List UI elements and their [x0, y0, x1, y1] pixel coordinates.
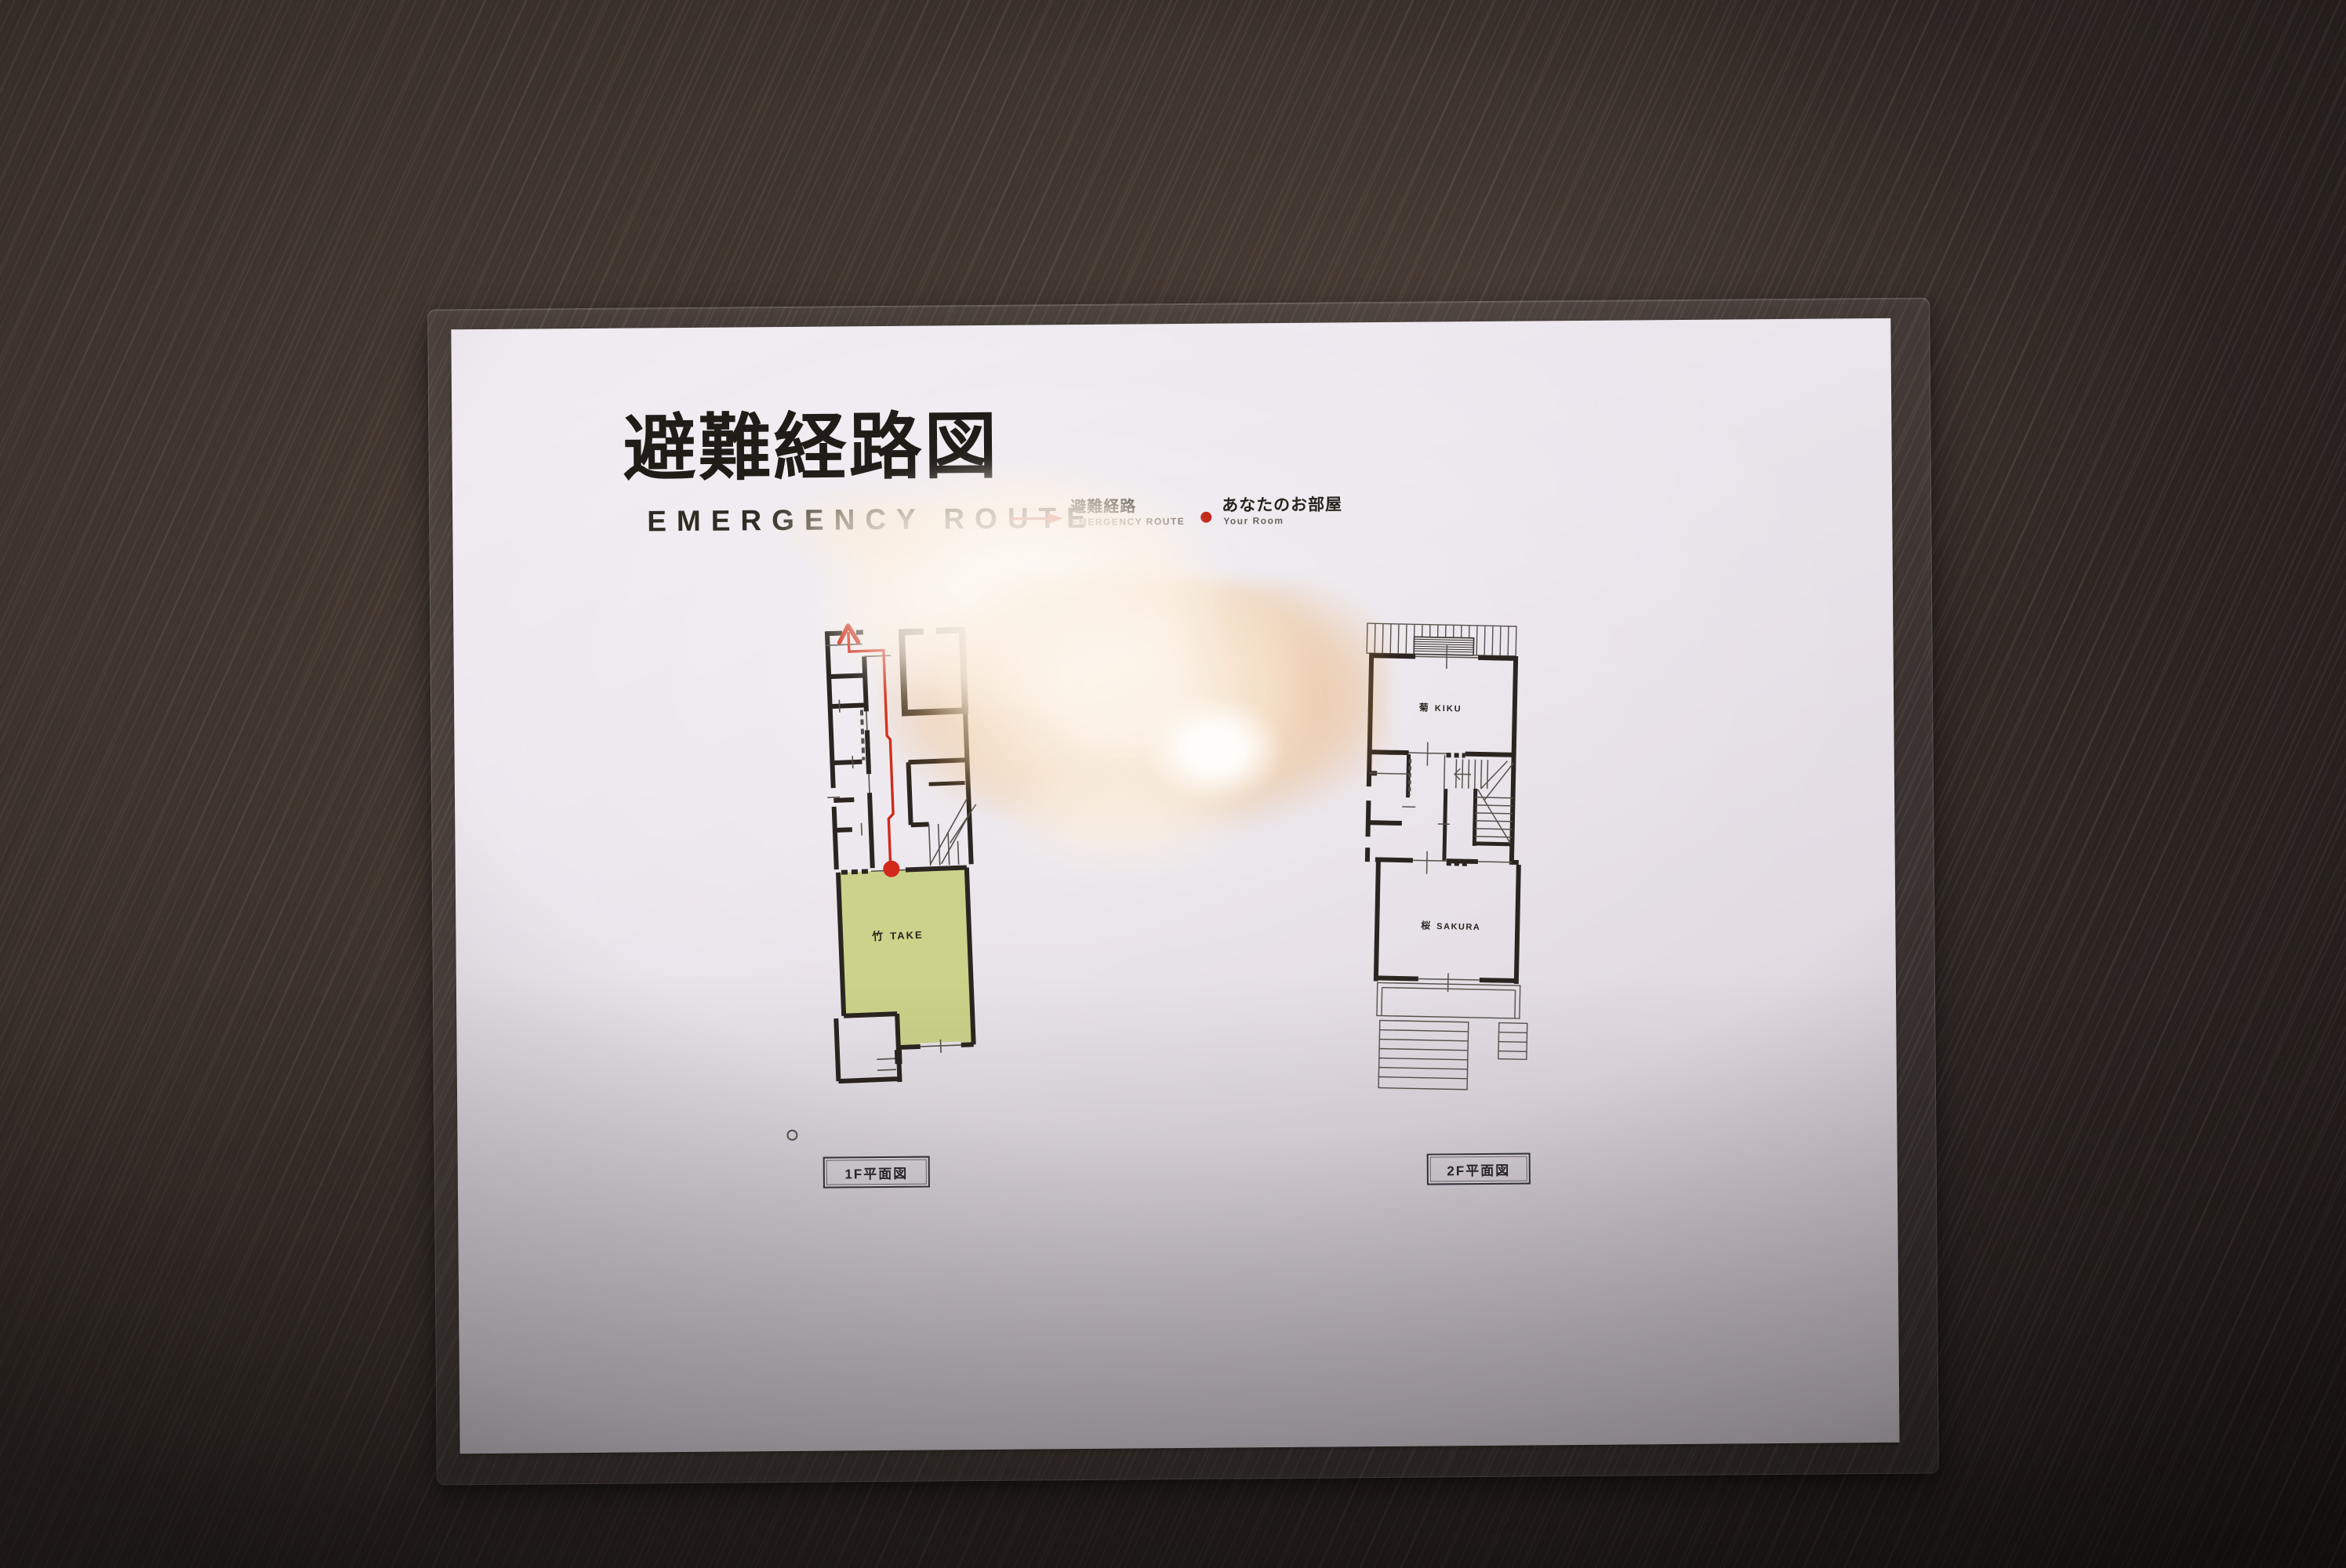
photo-vignette	[0, 0, 2346, 1568]
photo-of-emergency-route-sign: { "sign": { "title": { "jp": "避難経路図", "e…	[0, 0, 2346, 1568]
